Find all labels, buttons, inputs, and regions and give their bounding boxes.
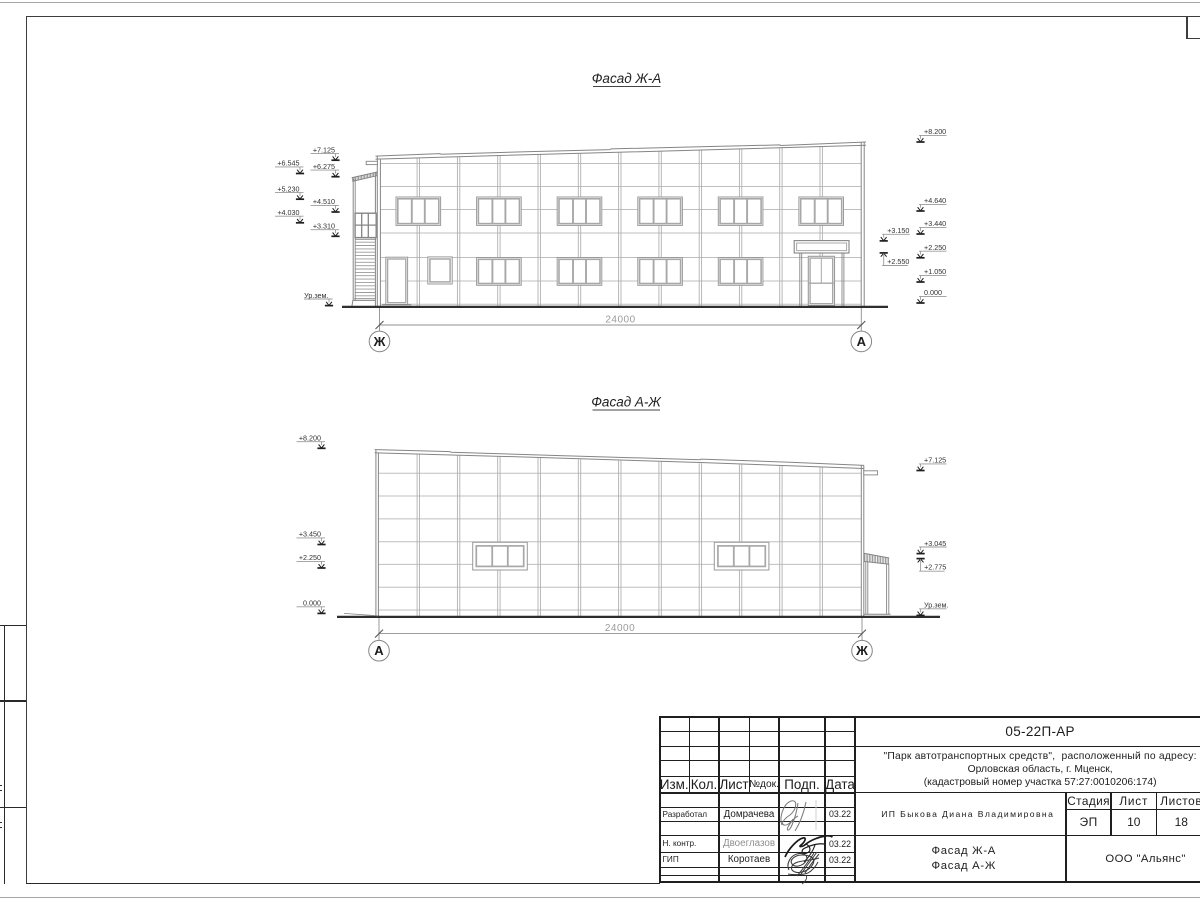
svg-text:Ж: Ж xyxy=(855,643,868,658)
svg-text:+4.030: +4.030 xyxy=(277,208,299,217)
svg-text:0.000: 0.000 xyxy=(924,288,942,297)
svg-text:+7.125: +7.125 xyxy=(313,145,335,154)
svg-text:24000: 24000 xyxy=(605,314,635,325)
svg-text:Фасад А-Ж: Фасад А-Ж xyxy=(591,395,662,410)
svg-text:Ур.зем.: Ур.зем. xyxy=(924,601,948,610)
svg-text:А: А xyxy=(857,334,867,349)
svg-text:+6.275: +6.275 xyxy=(313,162,335,171)
svg-text:+4.510: +4.510 xyxy=(313,197,335,206)
svg-text:+2.550: +2.550 xyxy=(887,257,909,266)
svg-text:+2.250: +2.250 xyxy=(299,553,321,562)
svg-text:+3.310: +3.310 xyxy=(313,222,335,231)
svg-text:+5.230: +5.230 xyxy=(277,184,299,193)
svg-text:+2.250: +2.250 xyxy=(924,243,946,252)
svg-text:24000: 24000 xyxy=(605,623,635,634)
svg-text:Фасад Ж-А: Фасад Ж-А xyxy=(592,71,662,86)
svg-text:+4.640: +4.640 xyxy=(924,196,946,205)
svg-text:+8.200: +8.200 xyxy=(299,434,321,443)
svg-text:+3.045: +3.045 xyxy=(924,539,946,548)
svg-text:+8.200: +8.200 xyxy=(924,127,946,136)
svg-text:Ур.зем.: Ур.зем. xyxy=(304,291,328,300)
svg-text:Ж: Ж xyxy=(373,334,386,349)
svg-text:+3.440: +3.440 xyxy=(924,219,946,228)
svg-text:+6.545: +6.545 xyxy=(277,159,299,168)
svg-text:+1.050: +1.050 xyxy=(924,267,946,276)
svg-text:+3.450: +3.450 xyxy=(299,530,321,539)
svg-text:+7.125: +7.125 xyxy=(924,456,946,465)
svg-text:+2.775: +2.775 xyxy=(924,563,946,572)
svg-text:+3.150: +3.150 xyxy=(887,226,909,235)
svg-text:А: А xyxy=(374,643,384,658)
svg-text:0.000: 0.000 xyxy=(303,599,321,608)
